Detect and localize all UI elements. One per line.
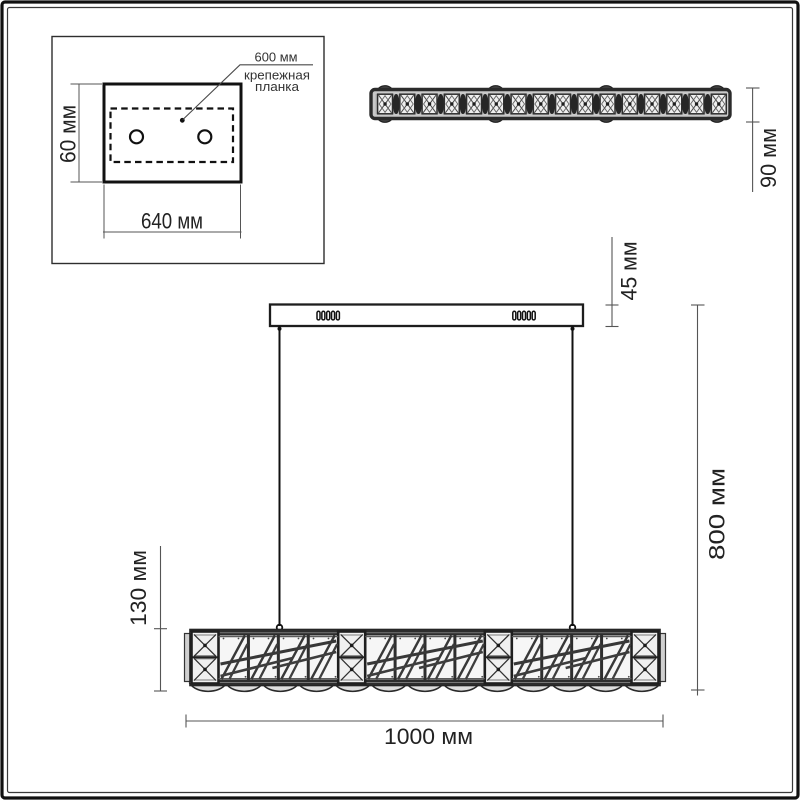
svg-text:планка: планка [255,79,300,94]
svg-text:600 мм: 600 мм [255,50,298,65]
svg-text:45 мм: 45 мм [617,242,642,301]
svg-text:90 мм: 90 мм [756,128,781,188]
svg-text:130 мм: 130 мм [126,550,151,626]
svg-text:1000 мм: 1000 мм [384,724,473,749]
svg-text:60 мм: 60 мм [56,105,81,163]
svg-text:640 мм: 640 мм [141,209,203,234]
svg-text:800 мм: 800 мм [705,468,730,560]
